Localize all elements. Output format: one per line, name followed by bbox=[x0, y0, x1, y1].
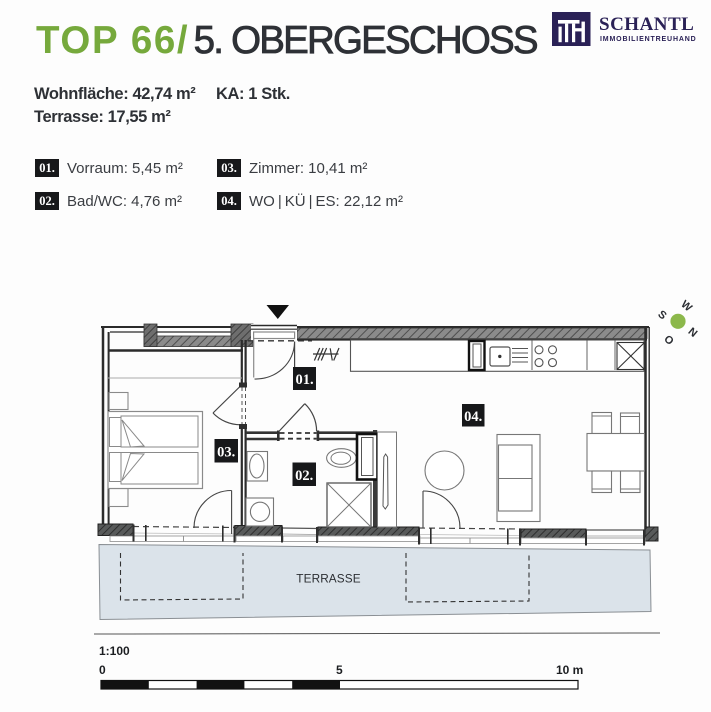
svg-text:5: 5 bbox=[336, 663, 343, 677]
svg-text:10 m: 10 m bbox=[556, 663, 583, 677]
svg-text:01.: 01. bbox=[295, 372, 313, 388]
svg-text:W: W bbox=[678, 298, 694, 314]
svg-text:N: N bbox=[686, 326, 700, 340]
svg-text:0: 0 bbox=[99, 663, 106, 677]
svg-text:1:100: 1:100 bbox=[99, 644, 130, 658]
svg-text:O: O bbox=[661, 333, 676, 348]
svg-text:TERRASSE: TERRASSE bbox=[296, 572, 360, 586]
svg-text:02.: 02. bbox=[295, 468, 313, 484]
svg-text:S: S bbox=[655, 308, 668, 322]
svg-text:04.: 04. bbox=[464, 409, 482, 425]
svg-text:03.: 03. bbox=[217, 445, 235, 461]
